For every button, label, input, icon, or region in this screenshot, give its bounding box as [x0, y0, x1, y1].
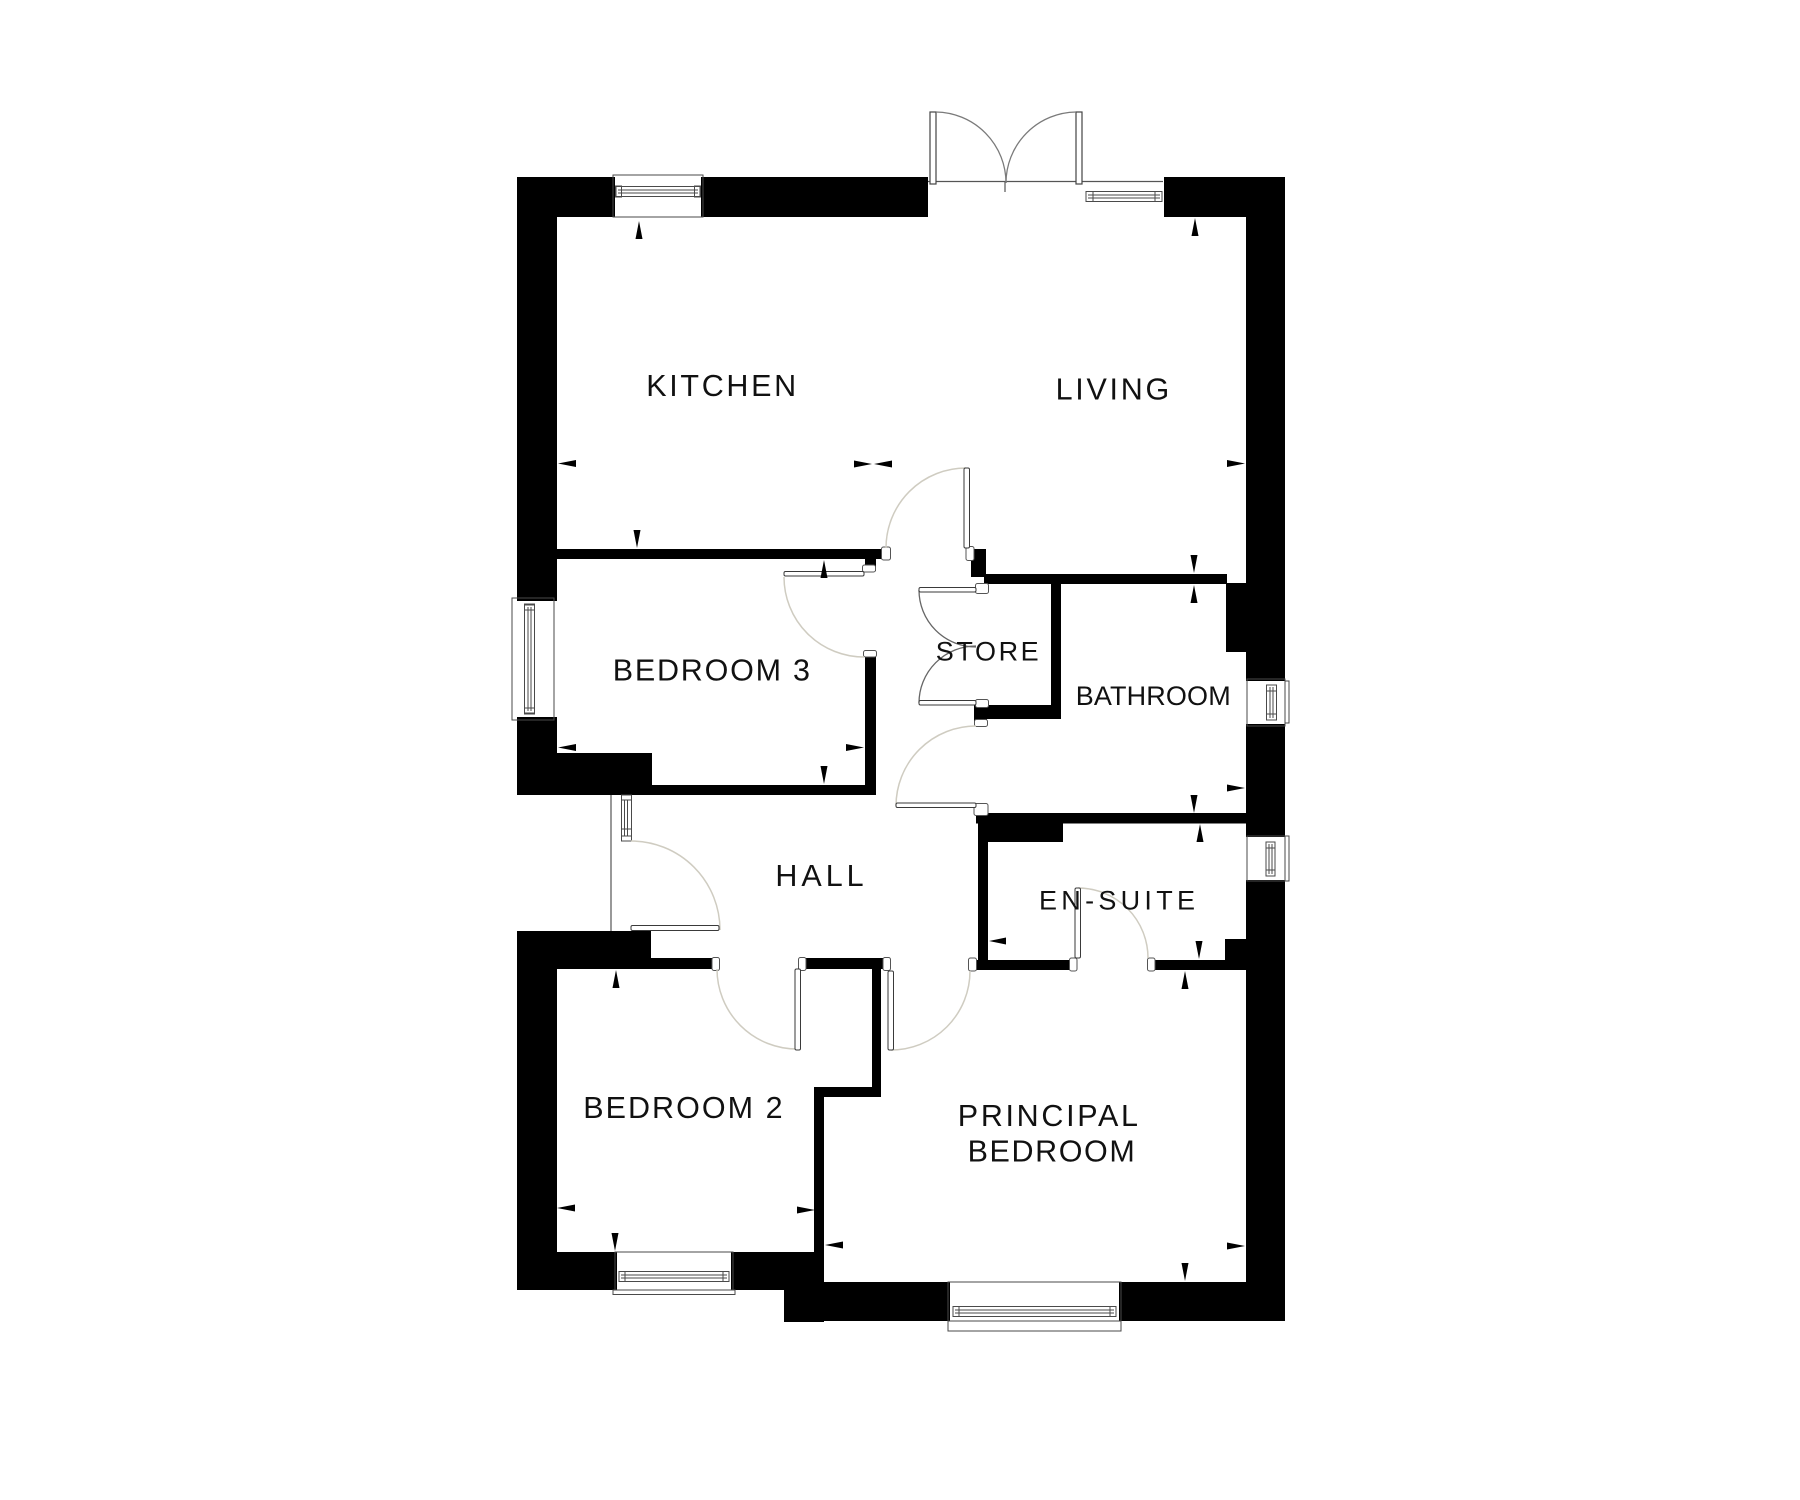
svg-text:PRINCIPAL: PRINCIPAL: [958, 1099, 1140, 1133]
svg-text:LIVING: LIVING: [1056, 373, 1172, 407]
svg-text:BATHROOM: BATHROOM: [1076, 681, 1233, 711]
svg-text:STORE: STORE: [936, 637, 1041, 667]
svg-text:HALL: HALL: [775, 859, 865, 893]
svg-text:EN-SUITE: EN-SUITE: [1039, 886, 1197, 916]
svg-text:BEDROOM 2: BEDROOM 2: [583, 1091, 784, 1125]
svg-text:BEDROOM 3: BEDROOM 3: [613, 654, 812, 688]
svg-text:BEDROOM: BEDROOM: [968, 1134, 1137, 1168]
svg-text:KITCHEN: KITCHEN: [646, 369, 798, 403]
